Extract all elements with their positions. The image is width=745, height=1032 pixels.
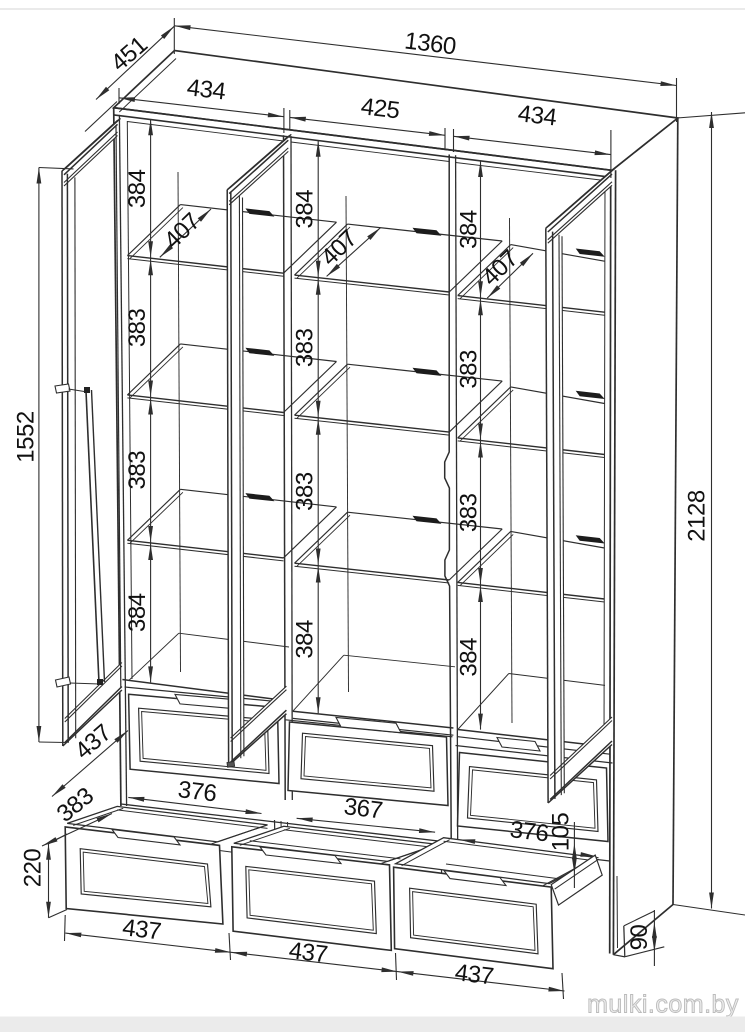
svg-text:437: 437 <box>121 914 163 945</box>
svg-text:384: 384 <box>292 190 319 229</box>
svg-text:384: 384 <box>124 593 151 632</box>
svg-text:383: 383 <box>124 308 151 347</box>
svg-text:383: 383 <box>455 350 482 389</box>
svg-text:434: 434 <box>516 100 558 131</box>
svg-text:384: 384 <box>455 210 482 249</box>
svg-text:105: 105 <box>547 813 574 852</box>
svg-text:mulki.com.by: mulki.com.by <box>587 991 739 1019</box>
svg-text:383: 383 <box>124 451 151 490</box>
svg-text:376: 376 <box>508 816 550 847</box>
svg-text:367: 367 <box>342 793 384 824</box>
svg-text:384: 384 <box>292 620 319 659</box>
svg-text:383: 383 <box>292 328 319 367</box>
svg-text:383: 383 <box>292 472 319 511</box>
svg-text:384: 384 <box>455 638 482 677</box>
svg-text:2128: 2128 <box>683 490 710 542</box>
svg-text:384: 384 <box>124 169 151 208</box>
svg-text:437: 437 <box>453 959 495 990</box>
svg-text:1552: 1552 <box>12 411 39 463</box>
svg-text:425: 425 <box>359 93 401 124</box>
svg-text:376: 376 <box>176 776 218 807</box>
svg-text:383: 383 <box>455 493 482 532</box>
svg-text:434: 434 <box>185 74 227 105</box>
svg-text:437: 437 <box>287 937 329 968</box>
svg-text:220: 220 <box>19 849 46 888</box>
svg-text:90: 90 <box>626 925 653 951</box>
